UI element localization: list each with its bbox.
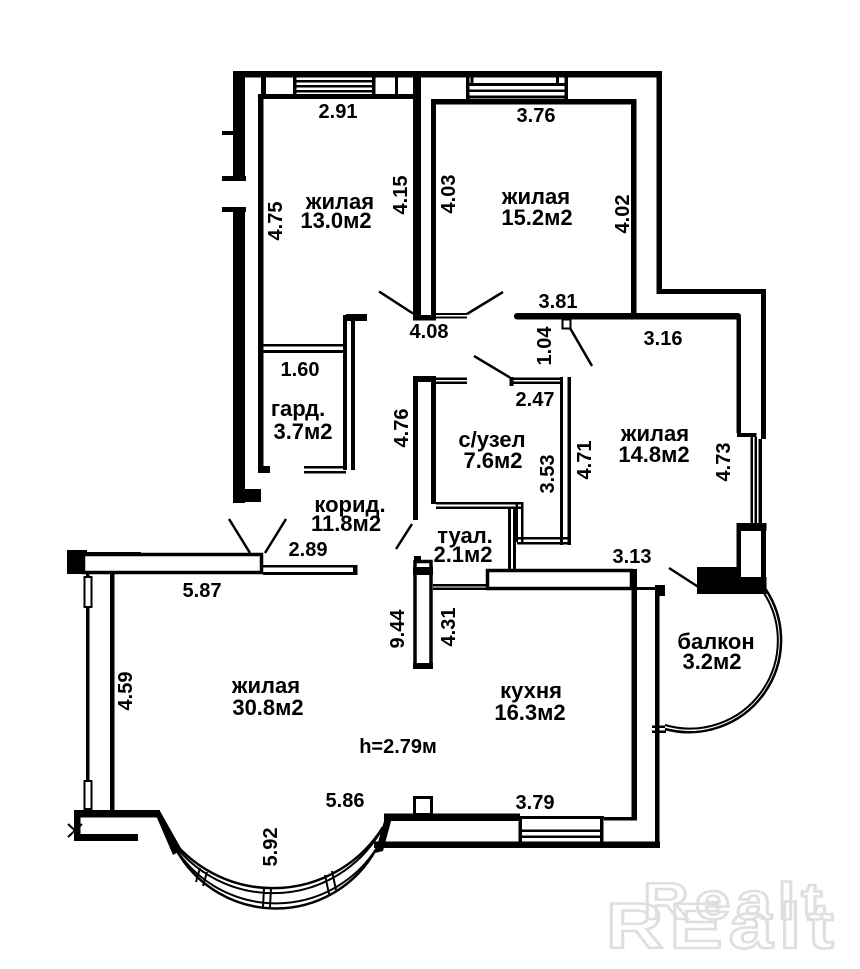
svg-text:4.02: 4.02 xyxy=(612,195,634,234)
svg-text:3.13: 3.13 xyxy=(613,546,652,568)
svg-text:4.31: 4.31 xyxy=(438,608,460,647)
svg-text:30.8м2: 30.8м2 xyxy=(232,695,303,720)
svg-text:REalt: REalt xyxy=(606,891,840,962)
svg-text:3.7м2: 3.7м2 xyxy=(273,419,332,444)
svg-text:2.91: 2.91 xyxy=(319,101,358,123)
svg-text:3.76: 3.76 xyxy=(517,105,556,127)
svg-text:4.15: 4.15 xyxy=(390,176,412,215)
svg-text:14.8м2: 14.8м2 xyxy=(618,442,689,467)
svg-text:3.53: 3.53 xyxy=(537,455,559,494)
svg-text:9.44: 9.44 xyxy=(387,609,409,649)
svg-text:h=2.79м: h=2.79м xyxy=(359,736,437,758)
svg-text:5.86: 5.86 xyxy=(326,790,365,812)
svg-text:4.59: 4.59 xyxy=(115,672,137,711)
svg-text:2.47: 2.47 xyxy=(516,389,555,411)
svg-text:4.73: 4.73 xyxy=(713,443,735,482)
svg-text:5.87: 5.87 xyxy=(183,580,222,602)
svg-text:3.2м2: 3.2м2 xyxy=(682,649,741,674)
svg-text:13.0м2: 13.0м2 xyxy=(300,208,371,233)
svg-text:4.71: 4.71 xyxy=(574,441,596,480)
svg-text:4.03: 4.03 xyxy=(438,175,460,214)
svg-text:11.8м2: 11.8м2 xyxy=(311,511,381,536)
svg-text:4.76: 4.76 xyxy=(391,409,413,448)
svg-text:4.75: 4.75 xyxy=(265,202,287,241)
svg-text:3.81: 3.81 xyxy=(539,291,578,313)
svg-text:1.04: 1.04 xyxy=(534,326,556,366)
svg-text:15.2м2: 15.2м2 xyxy=(501,205,572,230)
svg-text:2.1м2: 2.1м2 xyxy=(433,542,492,567)
svg-text:5.92: 5.92 xyxy=(260,828,282,867)
svg-text:3.16: 3.16 xyxy=(644,328,683,350)
svg-text:16.3м2: 16.3м2 xyxy=(494,700,565,725)
svg-text:7.6м2: 7.6м2 xyxy=(463,448,522,473)
svg-text:гард.: гард. xyxy=(271,396,325,421)
svg-text:3.79: 3.79 xyxy=(516,792,555,814)
svg-text:1.60: 1.60 xyxy=(281,359,320,381)
svg-text:4.08: 4.08 xyxy=(410,321,449,343)
svg-text:2.89: 2.89 xyxy=(289,539,328,561)
